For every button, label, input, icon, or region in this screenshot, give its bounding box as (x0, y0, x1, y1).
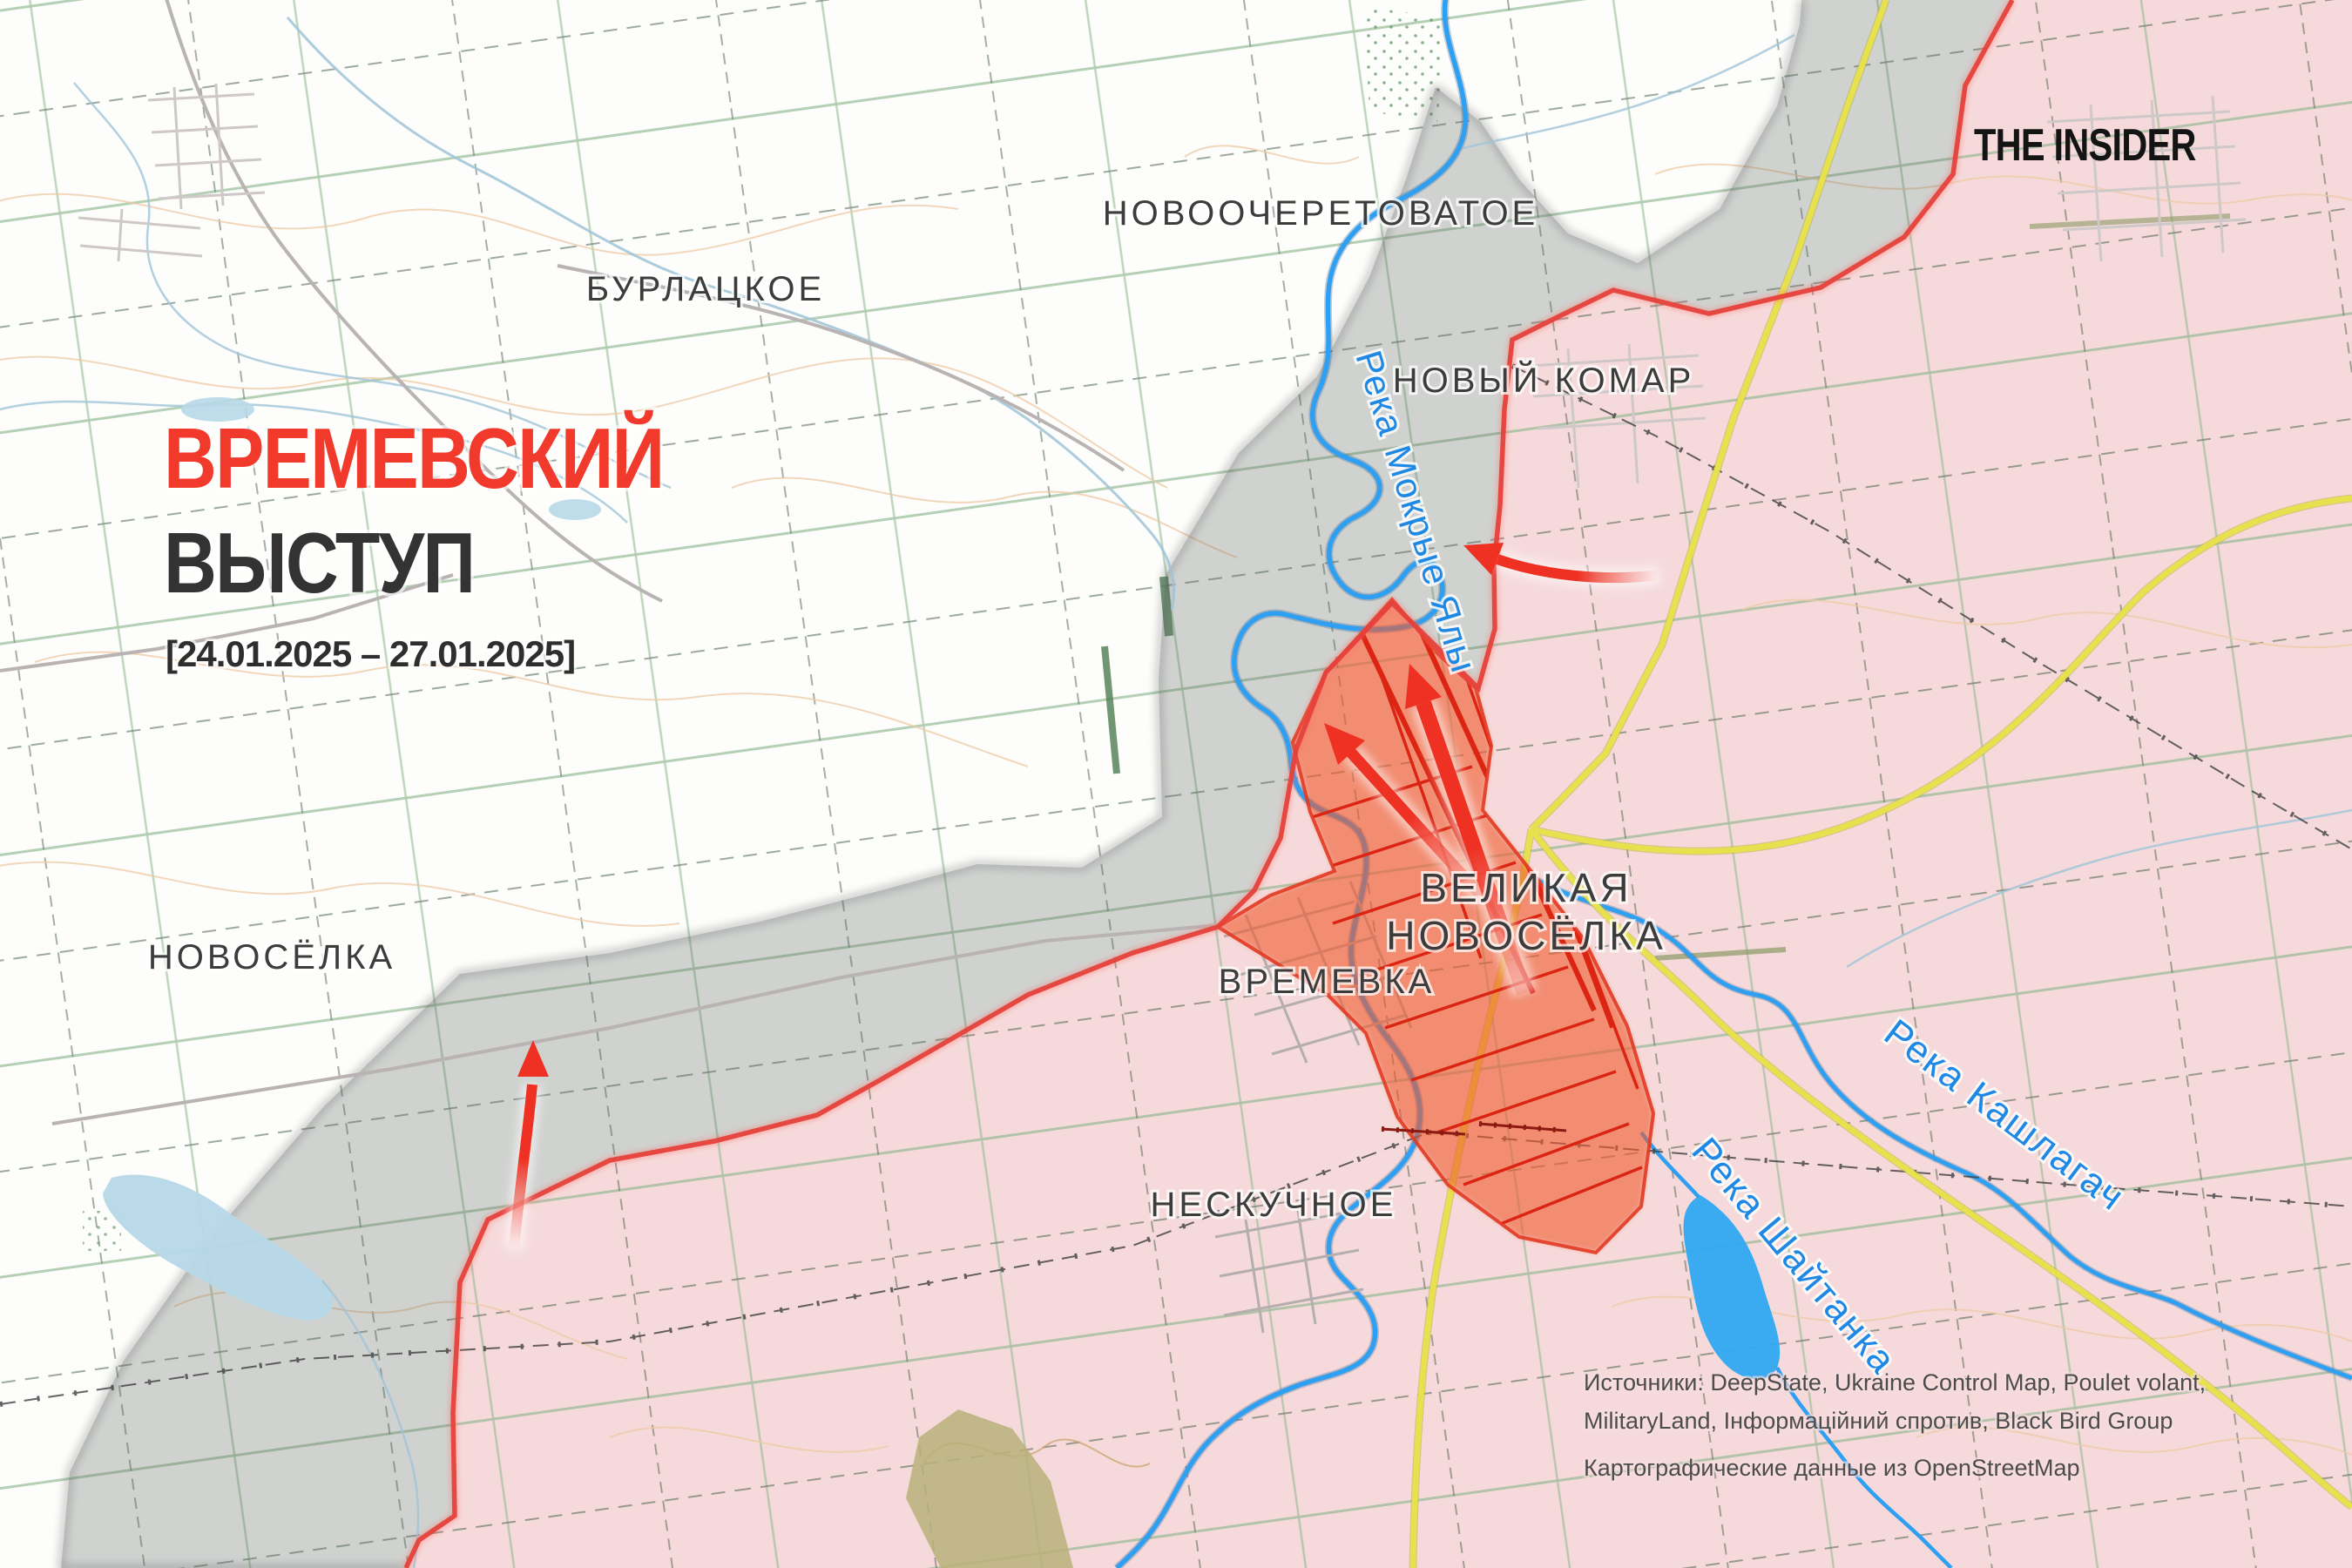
title-dates: [24.01.2025 – 27.01.2025] (166, 633, 575, 674)
sources-line2: MilitaryLand, Інформаційний спротив, Bla… (1584, 1408, 2173, 1434)
label-vremevka: ВРЕМЕВКА (1219, 963, 1436, 1001)
title-line2: ВЫСТУП (164, 516, 474, 611)
logo-the-insider: THE INSIDER (1974, 119, 2196, 171)
map-canvas: НОВООЧЕРЕТОВАТОЕ БУРЛАЦКОЕ НОВЫЙ КОМАР Н… (0, 0, 2352, 1568)
title-line1: ВРЕМЕВСКИЙ (164, 410, 663, 506)
label-burlatskoe: БУРЛАЦКОЕ (586, 270, 825, 308)
label-novosyolka: НОВОСЁЛКА (148, 938, 395, 977)
sources-line1: Источники: DeepState, Ukraine Control Ma… (1584, 1369, 2206, 1396)
label-velyka-novoselka-line2: НОВОСЁЛКА (1386, 913, 1666, 958)
sources-line3: Картографические данные из OpenStreetMap (1584, 1455, 2080, 1481)
label-velyka-novoselka-line1: ВЕЛИКАЯ (1420, 865, 1632, 910)
label-novoocheretovatoe: НОВООЧЕРЕТОВАТОЕ (1103, 194, 1538, 233)
label-neskuchnoe: НЕСКУЧНОЕ (1151, 1186, 1397, 1224)
war-situation-map: НОВООЧЕРЕТОВАТОЕ БУРЛАЦКОЕ НОВЫЙ КОМАР Н… (0, 0, 2352, 1568)
label-novy-komar: НОВЫЙ КОМАР (1393, 360, 1695, 400)
